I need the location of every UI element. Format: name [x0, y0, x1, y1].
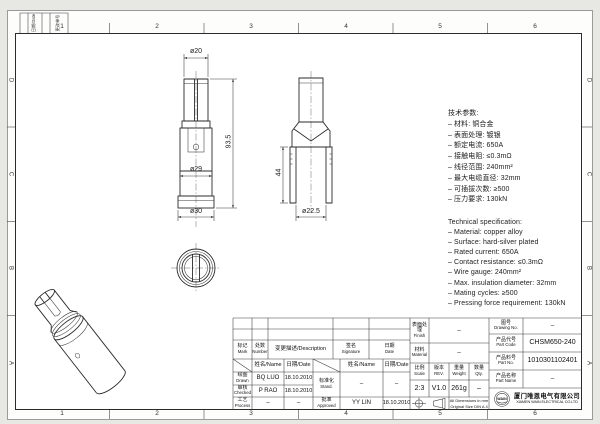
tb-part-code-label: 产品代号 Part Code [489, 334, 523, 352]
tb-standardized-name: – [340, 372, 383, 397]
tb-drawing-no-label: 图号 Drawing No. [489, 318, 523, 334]
front-view [178, 71, 214, 227]
zone-number-bottom: 1 [57, 409, 67, 419]
zone-letter-left: D [6, 76, 16, 85]
tb-weight-label: 重量 Weight [449, 363, 469, 380]
tb-approved-date: 18.10.2010 [383, 397, 410, 410]
label: 姓名/Name [254, 362, 281, 368]
spec-line: – Surface: hard-silver plated [448, 239, 566, 249]
label-cn: 表面处理 [410, 323, 429, 334]
label-en: Part Code [496, 343, 515, 348]
zone-number-bottom: 4 [341, 409, 351, 419]
zone-number-bottom: 6 [530, 409, 540, 419]
zone-number-bottom: 2 [152, 409, 162, 419]
zone-number-top: 5 [435, 22, 445, 32]
tb-date-subheader: 日期/Date [383, 359, 410, 372]
tb-finish-value: – [429, 318, 489, 343]
tb-number-header: 处数 Number [252, 340, 268, 359]
label: 日期/Date [286, 362, 310, 368]
value: CHSM650-240 [529, 339, 575, 347]
value: YY LIN [352, 400, 371, 407]
isometric-view [28, 283, 128, 397]
dim-total-height: 93.5 [226, 131, 233, 153]
label-en: Drawing No. [494, 326, 518, 331]
value: – [360, 381, 363, 388]
zone-number-bottom: 5 [435, 409, 445, 419]
corner-strip-label: 日期/Date [31, 12, 39, 34]
zone-letter-right: B [584, 264, 594, 273]
tb-standardized-date: – [383, 372, 410, 397]
tb-process-label: 工艺 Process [233, 397, 252, 410]
tb-part-name-value: – [523, 370, 582, 388]
tb-mark-header: 标记 Mark [233, 340, 252, 359]
engineering-drawing-page: 1 2 3 4 5 6 1 2 3 4 5 6 D C B A D C B A … [0, 0, 600, 424]
tb-name-subheader: 姓名/Name [340, 359, 383, 372]
dim-pin-diameter: ø20 [176, 48, 216, 55]
dim-base-diameter: ø30 [176, 208, 216, 215]
tb-date-header: 日期 Date [369, 340, 410, 359]
first-angle-projection-symbol [412, 398, 426, 410]
label-en: Scale [414, 372, 425, 377]
dim-bore-diameter: ø22.5 [291, 208, 331, 215]
label-en: Stand. [320, 385, 332, 390]
value: – [457, 349, 461, 356]
zone-letter-right: C [584, 170, 594, 179]
spec-block-chinese: 技术参数: – 材料: 铜合金 – 表面处理: 镀银 – 额定电流: 650A … [448, 108, 521, 205]
value: 1010301102401 [527, 357, 577, 365]
company-name-en: XIAMEN WAIN ELECTRICAL CO.LTD [516, 400, 578, 404]
tb-scale-label: 比例 Scale [410, 363, 429, 380]
dim-body-diameter: ø29 [176, 166, 216, 173]
spec-line: – Pressing force requirement: 130kN [448, 300, 566, 310]
spec-line: – Wire gauge: 240mm² [448, 269, 566, 279]
zone-letter-right: A [584, 359, 594, 368]
value: 2:3 [415, 385, 425, 393]
tb-process-date: – [284, 397, 313, 410]
value: 261g [451, 385, 467, 393]
spec-line: – Contact resistance: ≤0.3mΩ [448, 259, 566, 269]
label-en: Part Name [496, 379, 517, 384]
spec-line: – 表面处理: 镀银 [448, 130, 521, 141]
tb-material-value: – [429, 343, 489, 363]
dim-socket-depth: 44 [276, 162, 283, 184]
value: – [477, 385, 481, 393]
tb-qty-value: – [469, 380, 489, 397]
label-en: Date [385, 350, 394, 355]
label-en: Part No. [498, 361, 514, 366]
tb-part-name-label: 产品名称 Part Name [489, 370, 523, 388]
label-en: Number [252, 350, 267, 355]
spec-title-en: Technical specification: [448, 219, 566, 229]
tb-process-name: – [252, 397, 284, 410]
zone-letter-right: D [584, 76, 594, 85]
spec-block-english: Technical specification: – Material: cop… [448, 219, 566, 310]
zone-letter-left: A [6, 359, 16, 368]
spec-line: – 压力要求: 130kN [448, 194, 521, 205]
label: 姓名/Name [348, 362, 375, 368]
tb-checked-date: 18.10.2010 [284, 385, 313, 397]
label-en: Drawn [236, 379, 248, 384]
label-en: Checked [234, 391, 251, 396]
value: – [457, 327, 461, 334]
tb-rev-label: 版本 REV. [429, 363, 449, 380]
label-en: Finish [414, 334, 425, 339]
label: 变更描述/Description [275, 346, 326, 352]
tb-part-no-value: 1010301102401 [523, 352, 582, 370]
spec-line: – 可插拔次数: ≥500 [448, 184, 521, 195]
label-en: Material [412, 353, 427, 358]
tb-approved-label: 批准 Approved [313, 397, 340, 410]
zone-number-top: 2 [152, 22, 162, 32]
tb-part-code-value: CHSM650-240 [523, 334, 582, 352]
label-en: REV. [434, 372, 444, 377]
spec-line: – Mating cycles: ≥500 [448, 290, 566, 300]
tb-drawn-date: 18.10.2010 [284, 372, 313, 385]
spec-title-cn: 技术参数: [448, 108, 521, 119]
tb-approved-name: YY LIN [340, 397, 383, 410]
tb-checked-label: 审核 Checked [233, 385, 252, 397]
zone-letter-left: B [6, 264, 16, 273]
label-en: Qty. [475, 372, 483, 377]
label-en: Signature [342, 350, 360, 355]
zone-number-top: 4 [341, 22, 351, 32]
tb-part-no-label: 产品料号 Part No. [489, 352, 523, 370]
zone-letter-left: C [6, 170, 16, 179]
spec-line: – Max. insulation diameter: 32mm [448, 280, 566, 290]
tb-checked-name: P RAO [252, 385, 284, 397]
tb-standardized-label: 标准化 Stand. [313, 372, 340, 397]
value: – [297, 400, 300, 407]
tb-qty-label: 数量 Qty. [469, 363, 489, 380]
value: 18.10.2010 [285, 388, 313, 394]
zone-number-top: 6 [530, 22, 540, 32]
spec-line: – Material: copper alloy [448, 229, 566, 239]
value: V1.0 [432, 385, 446, 393]
value: P RAO [259, 388, 278, 395]
tb-company: 厦门唯恩电气有限公司 XIAMEN WAIN ELECTRICAL CO.LTD [512, 389, 582, 409]
tb-name-subheader: 姓名/Name [252, 359, 284, 372]
tb-description-header: 变更描述/Description [268, 340, 333, 359]
wain-logo-text: WAIN [494, 397, 510, 401]
tb-drawing-no-value: – [523, 318, 582, 334]
label-en: Process [235, 404, 251, 409]
spec-line: – 线径范围: 240mm² [448, 162, 521, 173]
spec-line: – 最大电缆直径: 32mm [448, 173, 521, 184]
value: 18.10.2010 [285, 375, 313, 381]
corner-strip-label: 更改单号 [55, 12, 63, 34]
spec-line: – 接触电阻: ≤0.3mΩ [448, 151, 521, 162]
tb-signature-header: 签名 Signature [333, 340, 369, 359]
zone-number-top: 3 [246, 22, 256, 32]
spec-line: – 额定电流: 650A [448, 140, 521, 151]
spec-line: – Rated current: 650A [448, 249, 566, 259]
spec-line: – 材料: 铜合金 [448, 119, 521, 130]
zone-number-bottom: 3 [246, 409, 256, 419]
label-en: Approved [317, 404, 335, 409]
tb-weight-value: 261g [449, 380, 469, 397]
label: 日期/Date [384, 362, 408, 368]
top-view [171, 243, 221, 293]
value: 18.10.2010 [383, 400, 410, 406]
label-en: Mark [238, 350, 248, 355]
value: – [395, 381, 398, 388]
tb-drawn-name: BQ LUO [252, 372, 284, 385]
note-line: Original Size DIN A 4 [450, 404, 487, 409]
tb-scale-value: 2:3 [410, 380, 429, 397]
value: – [266, 400, 269, 407]
tb-finish-label: 表面处理 Finish [410, 318, 429, 343]
company-name-cn: 厦门唯恩电气有限公司 [514, 393, 580, 400]
tb-date-subheader: 日期/Date [284, 359, 313, 372]
value: – [551, 375, 555, 382]
label-en: Weight [452, 372, 465, 377]
section-view [290, 71, 332, 213]
tb-rev-value: V1.0 [429, 380, 449, 397]
value: BQ LUO [257, 375, 280, 382]
value: – [551, 322, 555, 329]
tb-drawn-label: 绘图 Drawn [233, 372, 252, 385]
tb-dimensions-note: All Dimensions in mm Original Size DIN A… [449, 397, 489, 410]
cone-projection-symbol [434, 398, 446, 408]
tb-material-label: 材料 Material [410, 343, 429, 363]
